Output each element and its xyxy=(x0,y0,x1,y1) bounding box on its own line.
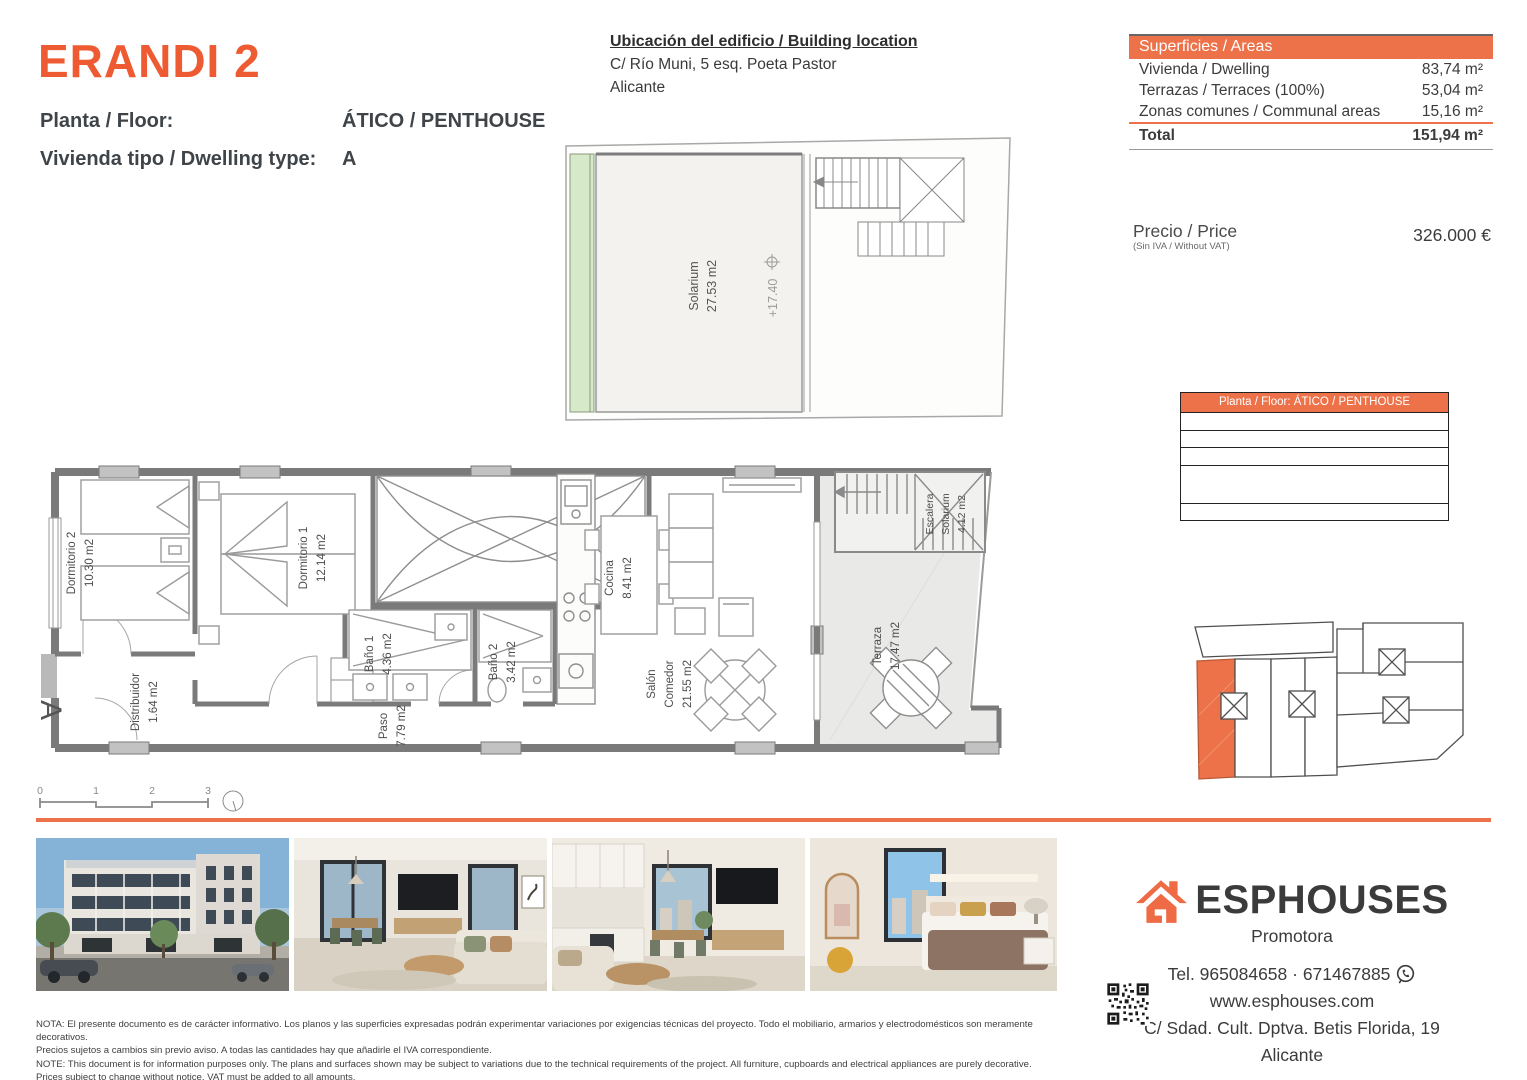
wall-art xyxy=(522,876,544,908)
room-area-label: 10.30 m2 xyxy=(84,539,96,587)
tv xyxy=(398,874,458,910)
agency-name: ESPHOUSES xyxy=(1195,878,1448,923)
note-line: Prices subject to change without notice.… xyxy=(36,1071,1084,1080)
room-area-label: 7.79 m2 xyxy=(396,705,408,747)
room-area-label: 4.36 m2 xyxy=(382,633,394,675)
location-city: Alicante xyxy=(610,79,918,97)
areas-row-value: 15,16 m² xyxy=(1422,103,1483,121)
photo-building-exterior xyxy=(36,838,289,991)
scale-tick: 0 xyxy=(37,785,43,797)
agency-block: ESPHOUSES Promotora Tel. 965084658 · 671… xyxy=(1092,876,1492,1069)
room-area-label: 4.12 m2 xyxy=(956,495,968,533)
location-heading: Ubicación del edificio / Building locati… xyxy=(610,33,918,51)
agency-web[interactable]: www.esphouses.com xyxy=(1092,988,1492,1015)
plant xyxy=(695,911,713,929)
agency-tagline: Promotora xyxy=(1092,926,1492,947)
pouf xyxy=(827,947,853,973)
areas-row-value: 53,04 m² xyxy=(1422,82,1483,100)
photo-kitchen xyxy=(552,838,805,991)
floor-label: Planta / Floor: xyxy=(40,110,173,133)
agency-city: Alicante xyxy=(1092,1042,1492,1069)
north-indicator-icon xyxy=(223,791,243,811)
floor-key-heading: Planta / Floor: ÁTICO / PENTHOUSE xyxy=(1181,393,1448,413)
floor-key-row xyxy=(1181,431,1448,448)
agency-address: C/ Sdad. Cult. Dptva. Betis Florida, 19 xyxy=(1092,1015,1492,1042)
round-table-salon xyxy=(694,649,776,731)
room-label: Salón xyxy=(646,669,658,698)
areas-row-label: Vivienda / Dwelling xyxy=(1139,61,1270,79)
room-area-label: 17.47 m2 xyxy=(890,622,902,670)
sofa-foreground xyxy=(552,946,614,991)
room-label: Escalera xyxy=(924,493,936,534)
areas-total-label: Total xyxy=(1139,127,1175,145)
whatsapp-icon xyxy=(1395,964,1416,985)
photo-bedroom xyxy=(810,838,1057,991)
sofa xyxy=(669,494,713,598)
room-label: Comedor xyxy=(664,660,676,707)
tv-console xyxy=(394,918,462,934)
sofa xyxy=(454,930,547,984)
window-terraza xyxy=(814,522,820,720)
solarium-name-label: Solarium xyxy=(687,261,701,310)
wall-pier xyxy=(41,654,57,698)
areas-total-row: Total 151,94 m² xyxy=(1129,122,1493,149)
note-line: NOTA: El presente documento es de caráct… xyxy=(36,1018,1084,1044)
bed-single xyxy=(81,480,189,620)
dwelling-type-value: A xyxy=(342,148,356,171)
areas-heading: Superficies / Areas xyxy=(1129,36,1493,59)
areas-row-terraces: Terrazas / Terraces (100%) 53,04 m² xyxy=(1129,80,1493,101)
arch-mirror xyxy=(826,874,858,938)
scale-tick: 3 xyxy=(205,785,211,797)
qr-code xyxy=(1106,982,1150,1026)
scale-bar: 0 1 2 3 xyxy=(28,782,258,818)
dining-set xyxy=(330,918,382,946)
areas-row-dwelling: Vivienda / Dwelling 83,74 m² xyxy=(1129,59,1493,80)
tv xyxy=(716,868,778,904)
room-label: Distribuidor xyxy=(130,673,142,731)
room-area-label: 1.64 m2 xyxy=(148,681,160,723)
scale-tick: 2 xyxy=(149,785,155,797)
room-area-label: 21.55 m2 xyxy=(682,660,694,708)
page-title: ERANDI 2 xyxy=(38,34,261,88)
floor-key-row xyxy=(1181,504,1448,520)
floor-plan: Dormitorio 2 10.30 m2 Dormitorio 1 12.14… xyxy=(35,458,1040,780)
legal-notes: NOTA: El presente documento es de caráct… xyxy=(36,1018,1084,1080)
areas-row-communal: Zonas comunes / Communal areas 15,16 m² xyxy=(1129,101,1493,122)
esphouses-logo-icon xyxy=(1135,876,1189,924)
areas-row-label: Terrazas / Terraces (100%) xyxy=(1139,82,1325,100)
room-label: Dormitorio 1 xyxy=(298,527,310,590)
window-left xyxy=(49,518,61,628)
rug xyxy=(332,970,456,990)
price-label: Precio / Price xyxy=(1133,222,1237,241)
solarium-plan: Solarium 27.53 m2 +17.40 xyxy=(558,124,1026,424)
floor-key-row xyxy=(1181,466,1448,504)
note-line: Precios sujetos a cambios sin previo avi… xyxy=(36,1044,1084,1057)
building-location-block: Ubicación del edificio / Building locati… xyxy=(610,33,918,97)
areas-row-label: Zonas comunes / Communal areas xyxy=(1139,103,1380,121)
areas-total-value: 151,94 m² xyxy=(1412,127,1483,145)
side-table xyxy=(675,608,705,634)
room-label: Baño 2 xyxy=(488,644,500,680)
sideboard xyxy=(712,930,784,950)
room-label: Terraza xyxy=(872,626,884,665)
note-line: NOTE: This document is for information p… xyxy=(36,1058,1084,1071)
bed-double xyxy=(199,482,355,644)
solarium-area-label: 27.53 m2 xyxy=(705,260,719,312)
floor-key-row xyxy=(1181,413,1448,431)
scale-tick: 1 xyxy=(93,785,99,797)
floor-value: ÁTICO / PENTHOUSE xyxy=(342,110,545,133)
areas-row-value: 83,74 m² xyxy=(1422,61,1483,79)
cove-light xyxy=(930,874,1038,882)
floor-key-row xyxy=(1181,448,1448,466)
cabinets xyxy=(552,844,644,962)
areas-table: Superficies / Areas Vivienda / Dwelling … xyxy=(1129,34,1493,150)
room-area-label: 8.41 m2 xyxy=(622,557,634,599)
price-value: 326.000 € xyxy=(1413,225,1491,246)
room-label: Solarium xyxy=(940,493,952,535)
agency-phone: Tel. 965084658 · 671467885 xyxy=(1168,961,1391,988)
price-sublabel: (Sin IVA / Without VAT) xyxy=(1133,241,1237,252)
room-label: Paso xyxy=(378,713,390,739)
location-address: C/ Río Muni, 5 esq. Poeta Pastor xyxy=(610,56,918,74)
divider-line xyxy=(36,818,1491,822)
level-value-label: +17.40 xyxy=(766,279,780,318)
dwelling-type-label: Vivienda tipo / Dwelling type: xyxy=(40,148,316,171)
site-key-plan xyxy=(1175,595,1485,805)
room-area-label: 12.14 m2 xyxy=(316,534,328,582)
section-marker: A xyxy=(35,700,67,720)
room-label: Dormitorio 2 xyxy=(66,532,78,595)
floor-key-table: Planta / Floor: ÁTICO / PENTHOUSE xyxy=(1180,392,1449,521)
dining-set xyxy=(650,930,706,958)
price-block: Precio / Price (Sin IVA / Without VAT) 3… xyxy=(1133,222,1491,252)
photo-living-room xyxy=(294,838,547,991)
room-label: Baño 1 xyxy=(364,636,376,672)
room-label: Cocina xyxy=(604,560,616,596)
brochure-page: ERANDI 2 Planta / Floor: ÁTICO / PENTHOU… xyxy=(0,0,1527,1080)
room-area-label: 3.42 m2 xyxy=(506,641,518,683)
